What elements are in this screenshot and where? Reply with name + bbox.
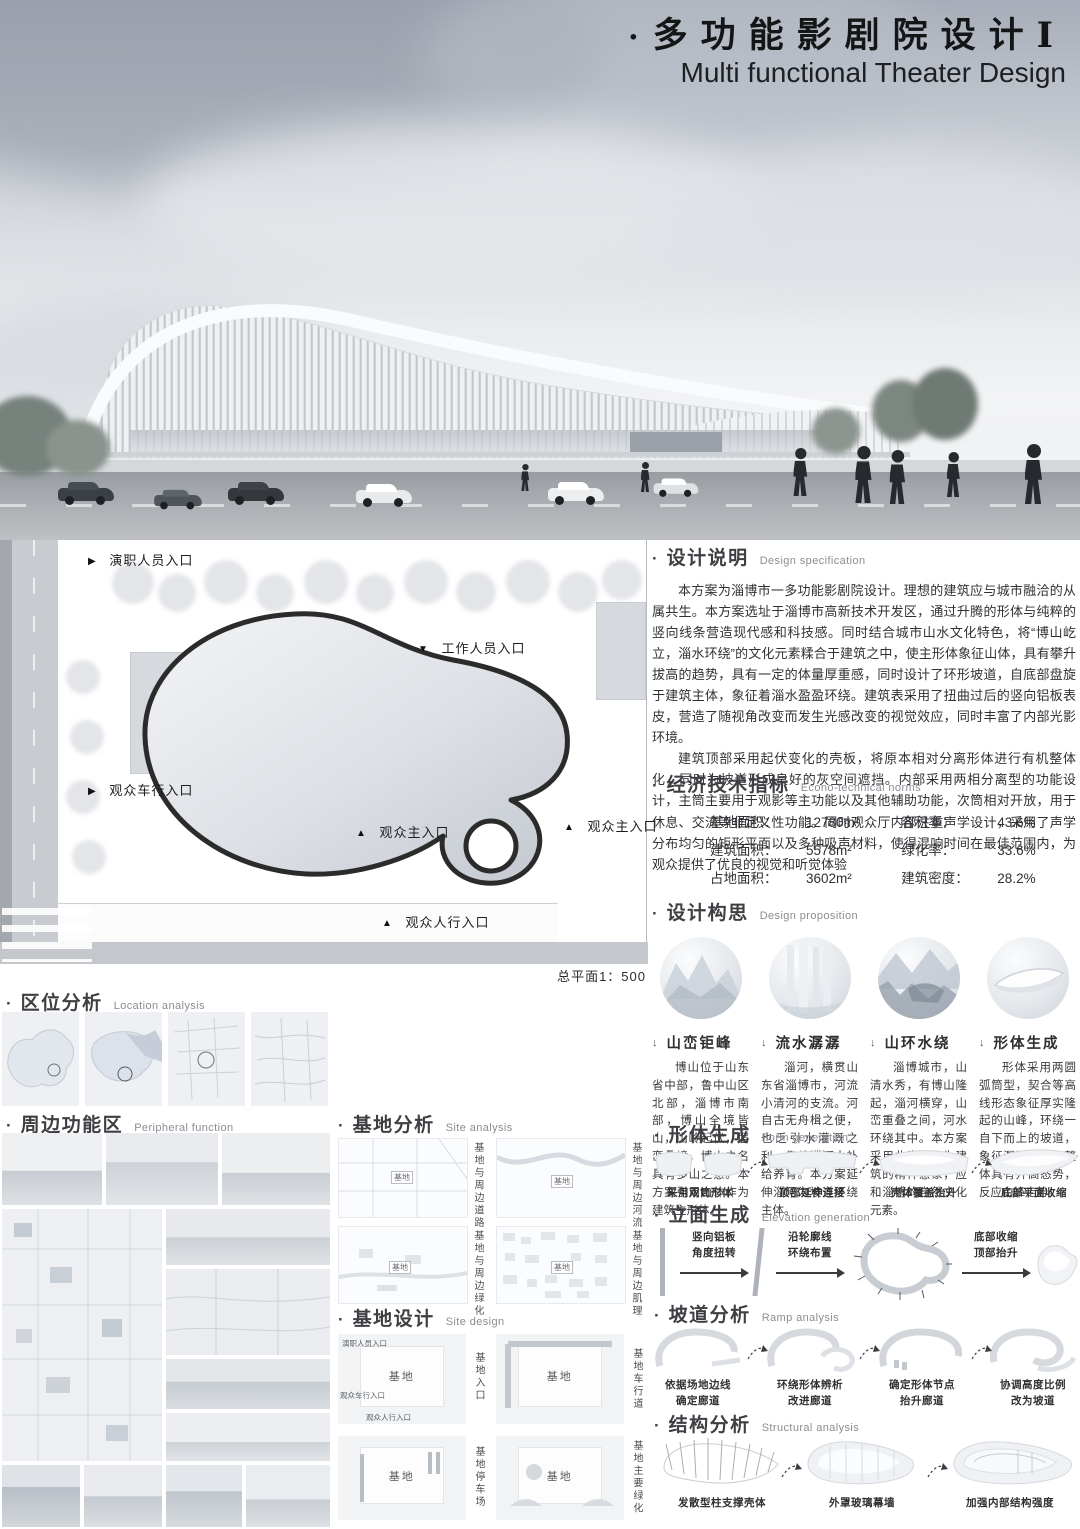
triangle-up-icon: ▲ [356, 828, 367, 839]
ramp-step-2-label: 环绕形体辨析 改进廊道 [764, 1378, 856, 1410]
bullet-icon: · [338, 1310, 344, 1330]
sa-panel-roads: 基地 [338, 1138, 468, 1218]
header-en: Ramp analysis [762, 1312, 839, 1324]
entry-label-text: 观众车行入口 [109, 783, 193, 798]
econ-row: 基地面积：12780m² [710, 813, 859, 832]
entry-label-staff: ▶ 演职人员入口 [88, 550, 193, 569]
dashed-arrow-icon [926, 1460, 950, 1480]
site-tag: 基地 [389, 1261, 411, 1274]
person [792, 448, 808, 496]
poster: ·多功能影剧院设计Ⅰ Multi functional Theater Desi… [0, 0, 1080, 1529]
site-tag: 基地 [551, 1261, 573, 1274]
arrow-down-icon: ↓ [652, 1037, 660, 1049]
bullet-icon: · [654, 1206, 660, 1226]
triangle-up-icon: ▲ [564, 822, 575, 833]
tree [72, 840, 106, 874]
structure-step-1-shape [656, 1434, 790, 1492]
arrow-down-icon: ↓ [979, 1037, 987, 1049]
header-zh: 经济技术指标 [667, 770, 790, 797]
header-zh: 坡道分析 [669, 1300, 751, 1327]
tree [46, 420, 110, 476]
econ-value: 3602m² [806, 869, 852, 888]
elevation-steps: 竖向铝板 角度扭转 沿轮廓线 环绕布置 底部收缩 顶部抬升 [652, 1226, 1080, 1302]
sd-panel-green: 基地 [496, 1436, 624, 1520]
map-district [251, 1012, 328, 1106]
ramp-step-4-shape [988, 1326, 1078, 1374]
structure-header: · 结构分析 Structural analysis [654, 1410, 859, 1437]
form-step-1-shape [652, 1146, 748, 1182]
location-header: · 区位分析 Location analysis [6, 988, 205, 1015]
structure-step-1-label: 发散型柱支撑壳体 [652, 1496, 792, 1512]
econ-col-left: 基地面积：12780m² 建筑面积：5578m² 占地面积：3602m² [710, 813, 859, 888]
elevation-step-2-label: 沿轮廓线 环绕布置 [774, 1230, 846, 1262]
plan-scale-label: 总平面1：500 [506, 966, 646, 985]
section-econ: · 经济技术指标 Econo-technical norms 基地面积：1278… [652, 770, 1080, 888]
cloud [640, 150, 1080, 290]
photo-area-map [2, 1209, 162, 1461]
person [854, 446, 873, 503]
econ-label: 绿化率： [901, 841, 997, 860]
site-design-header: · 基地设计 Site design [338, 1304, 505, 1331]
car [228, 488, 284, 501]
ramp-step-4-label: 协调高度比例 改为坡道 [988, 1378, 1078, 1410]
poster-title-zh: ·多功能影剧院设计Ⅰ [628, 16, 1066, 56]
header-zh: 区位分析 [21, 988, 103, 1015]
site-tag: 基地 [389, 1368, 415, 1384]
dashed-arrow-icon [970, 1156, 994, 1176]
sd-panel-road: 基地 [496, 1334, 624, 1424]
car [154, 495, 202, 506]
sa-caption-roads: 基地与周边道路 [470, 1142, 485, 1230]
proposition-caption: ↓山峦钜峰 [652, 1032, 749, 1053]
tree [912, 368, 978, 440]
photo-building [166, 1465, 242, 1527]
bullet-icon: · [652, 776, 658, 796]
photo-building [84, 1465, 162, 1527]
header-en: Econo-technical norms [801, 782, 921, 794]
elevation-step-3-label: 底部收缩 顶部抬升 [960, 1230, 1032, 1262]
econ-value: 43.6% [997, 813, 1035, 832]
photo-building [106, 1133, 218, 1205]
form-model-image [987, 937, 1069, 1019]
econ-col-right: 容积率：43.6% 绿化率：33.6% 建筑密度：28.2% [901, 813, 1035, 888]
photo-building [166, 1413, 330, 1461]
arrow-right-icon [962, 1272, 1024, 1274]
poster-title-en: Multi functional Theater Design [628, 57, 1066, 89]
elevation-header: · 立面生成 Elevation generation [654, 1200, 870, 1227]
structure-step-2-label: 外罩玻璃幕墙 [794, 1496, 930, 1512]
person [521, 464, 530, 491]
dashed-arrow-icon [970, 1342, 994, 1362]
twisted-panel-bar [752, 1228, 764, 1296]
econ-label: 建筑密度： [901, 869, 997, 888]
hero-rendering: ·多功能影剧院设计Ⅰ Multi functional Theater Desi… [0, 0, 1080, 540]
header-en: Site analysis [446, 1122, 513, 1134]
econ-row: 建筑密度：28.2% [901, 869, 1035, 888]
car [58, 488, 114, 501]
proposition-caption: ↓形体生成 [979, 1032, 1076, 1053]
plan-outline-diagram [850, 1226, 956, 1302]
econ-header: · 经济技术指标 Econo-technical norms [652, 770, 1080, 797]
map-country [2, 1012, 79, 1106]
elevation-step-1-label: 竖向铝板 角度扭转 [678, 1230, 750, 1262]
arrow-right-icon [680, 1272, 742, 1274]
bullet-icon: · [654, 1416, 660, 1436]
header-en: Form generation [762, 1132, 849, 1144]
form-step-4-shape [988, 1146, 1080, 1182]
person [640, 462, 650, 492]
entry-label-pedestrian: ▲ 观众人行入口 [382, 912, 490, 931]
sd-caption-entry: 基地入口 [471, 1352, 486, 1402]
entry-label-text: 观众主入口 [588, 819, 658, 834]
sd-caption-road: 基地车行道 [629, 1348, 644, 1411]
form-generation-header: · 形体生成 Form generation [654, 1120, 848, 1147]
sd-caption-parking: 基地停车场 [471, 1446, 486, 1509]
dashed-arrow-icon [780, 1460, 804, 1480]
bullet-icon: · [652, 549, 658, 569]
site-tag: 基地 [551, 1175, 573, 1188]
entry-label-text: 工作人员入口 [442, 641, 526, 656]
location-maps [2, 1012, 328, 1106]
econ-row: 占地面积：3602m² [710, 869, 859, 888]
proposition-caption: ↓山环水绕 [870, 1032, 967, 1053]
header-zh: 设计说明 [667, 543, 749, 570]
site-analysis-header: · 基地分析 Site analysis [338, 1110, 513, 1137]
poster-title: ·多功能影剧院设计Ⅰ Multi functional Theater Desi… [628, 16, 1066, 89]
person [946, 452, 961, 497]
bullet-icon: · [628, 20, 638, 55]
caption-text: 形体生成 [994, 1032, 1060, 1053]
header-zh: 结构分析 [669, 1410, 751, 1437]
structure-steps: 发散型柱支撑壳体 外罩玻璃幕墙 加强内部结构强度 [652, 1434, 1080, 1524]
bullet-icon: · [652, 904, 658, 924]
car [548, 488, 604, 501]
sa-panel-river: 基地 [496, 1138, 626, 1218]
car [654, 483, 699, 493]
header-en: Structural analysis [762, 1422, 859, 1434]
ramp-step-3-shape [876, 1326, 968, 1374]
triangle-right-icon: ▶ [88, 786, 97, 797]
sa-caption-fabric: 基地与周边肌理 [628, 1230, 643, 1318]
econ-table: 基地面积：12780m² 建筑面积：5578m² 占地面积：3602m² 容积率… [710, 813, 1080, 888]
econ-row: 建筑面积：5578m² [710, 841, 859, 860]
header-zh: 形体生成 [669, 1120, 751, 1147]
sd-caption-green: 基地主要绿化 [629, 1440, 644, 1515]
header-en: Site design [446, 1316, 505, 1328]
dashed-arrow-icon [858, 1342, 882, 1362]
entry-label-worker: ▼ 工作人员入口 [418, 638, 526, 657]
sd-panel-parking: 基地 [338, 1436, 466, 1520]
proposition-caption: ↓流水潺潺 [761, 1032, 858, 1053]
caption-text: 山峦钜峰 [667, 1032, 733, 1053]
ramp-header: · 坡道分析 Ramp analysis [654, 1300, 839, 1327]
econ-value: 12780m² [806, 813, 859, 832]
econ-row: 绿化率：33.6% [901, 841, 1035, 860]
sa-panel-green: 基地 [338, 1226, 468, 1304]
header-en: Design specification [760, 555, 866, 567]
header-en: Location analysis [114, 1000, 205, 1012]
horizontal-road [0, 942, 648, 964]
peripheral-photo-mosaic [0, 1133, 332, 1529]
master-site-plan: ▶ 演职人员入口 ▼ 工作人员入口 ▶ 观众车行入口 ▲ 观众主入口 ▲ 观众主… [0, 540, 648, 985]
waterfall-photo [769, 937, 851, 1019]
photo-building [222, 1133, 330, 1205]
map-city [168, 1012, 245, 1106]
road-edge [0, 540, 12, 964]
ramp-step-2-shape [764, 1326, 856, 1374]
site-analysis-grid: 基地 基地与周边道路 基地 基地与周边河流 基地 基地与周边绿化 基地 基地与周… [338, 1138, 650, 1304]
header-en: Elevation generation [762, 1212, 870, 1224]
design-spec-paragraph-1: 本方案为淄博市一多功能影剧院设计。理想的建筑应与城市融洽的从属共生。本方案选址于… [652, 580, 1076, 748]
entry-label-text: 演职人员入口 [109, 553, 193, 568]
ramp-step-3-label: 确定形体节点 抬升廊道 [876, 1378, 968, 1410]
ramp-steps: 依据场地边线 确定廊道 环绕形体辨析 改进廊道 确定形体节点 抬升廊道 协调高度… [652, 1326, 1080, 1410]
triangle-right-icon: ▶ [88, 556, 97, 567]
zebra-crossing [2, 908, 92, 962]
econ-label: 占地面积： [710, 869, 806, 888]
road-dashes [33, 540, 35, 964]
sd-entry-staff: 演职人员入口 [342, 1338, 387, 1349]
entry-label-vehicle: ▶ 观众车行入口 [88, 780, 193, 799]
structure-step-2-shape [802, 1434, 922, 1492]
proposition-header: · 设计构思 Design proposition [652, 898, 1080, 925]
entry-label-main-left: ▲ 观众主入口 [356, 822, 450, 841]
bullet-icon: · [654, 1126, 660, 1146]
sa-caption-river: 基地与周边河流 [628, 1142, 643, 1230]
triangle-down-icon: ▼ [418, 644, 429, 655]
arrow-down-icon: ↓ [870, 1037, 878, 1049]
arrow-right-icon [776, 1272, 838, 1274]
city-landscape-photo [878, 937, 960, 1019]
mountain-photo [660, 937, 742, 1019]
site-tag: 基地 [391, 1171, 413, 1184]
dashed-arrow-icon [746, 1156, 770, 1176]
arrow-down-icon: ↓ [761, 1037, 769, 1049]
site-design-grid: 基地 演职人员入口 观众车行入口 观众人行入口 基地入口 基地 基地车行道 基地… [338, 1334, 650, 1526]
entry-label-text: 观众主入口 [380, 825, 450, 840]
bullet-icon: · [338, 1116, 344, 1136]
ramp-step-1-shape [652, 1326, 744, 1374]
sd-entry-pedestrian: 观众人行入口 [366, 1412, 411, 1423]
caption-text: 山环水绕 [885, 1032, 951, 1053]
sd-panel-entries: 基地 演职人员入口 观众车行入口 观众人行入口 [338, 1334, 466, 1424]
econ-row: 容积率：43.6% [901, 813, 1035, 832]
tree [66, 660, 100, 694]
form-step-2-shape [764, 1146, 860, 1182]
header-zh: 立面生成 [669, 1200, 751, 1227]
header-zh: 基地设计 [353, 1304, 435, 1331]
structure-step-3-shape [948, 1434, 1080, 1492]
person [1023, 444, 1043, 504]
structure-step-3-label: 加强内部结构强度 [940, 1496, 1080, 1512]
dashed-arrow-icon [746, 1342, 770, 1362]
photo-bridge [2, 1465, 80, 1527]
header-zh: 设计构思 [667, 898, 749, 925]
aluminum-panel-bar [660, 1228, 665, 1296]
econ-label: 容积率： [901, 813, 997, 832]
photo-building [246, 1465, 330, 1527]
tree [70, 720, 104, 754]
ramp-step-1-label: 依据场地边线 确定廊道 [652, 1378, 744, 1410]
building-footprint [115, 588, 655, 918]
econ-label: 基地面积： [710, 813, 806, 832]
econ-value: 5578m² [806, 841, 852, 860]
caption-text: 流水潺潺 [776, 1032, 842, 1053]
design-spec-header: · 设计说明 Design specification [652, 543, 1080, 570]
map-province [85, 1012, 162, 1106]
triangle-up-icon: ▲ [382, 918, 393, 929]
photo-building [166, 1209, 330, 1265]
car [356, 490, 412, 503]
photo-building [166, 1359, 330, 1409]
sa-panel-fabric: 基地 [496, 1226, 626, 1304]
header-zh: 基地分析 [353, 1110, 435, 1137]
form-step-4-label: 底部平面收缩 [988, 1186, 1080, 1202]
theater-building-rendering [70, 280, 950, 480]
form-step-3-label: 壳体覆盖抬升 [876, 1186, 972, 1202]
entry-label-main-right: ▲ 观众主入口 [564, 816, 658, 835]
person [888, 450, 906, 504]
dashed-arrow-icon [858, 1156, 882, 1176]
bullet-icon: · [6, 994, 12, 1014]
econ-label: 建筑面积： [710, 841, 806, 860]
photo-building [2, 1133, 102, 1205]
entry-label-text: 观众人行入口 [406, 915, 490, 930]
econ-value: 33.6% [997, 841, 1035, 860]
header-en: Design proposition [760, 910, 858, 922]
massing-model [1034, 1238, 1080, 1292]
bullet-icon: · [654, 1306, 660, 1326]
form-step-3-shape [876, 1146, 972, 1182]
econ-value: 28.2% [997, 869, 1035, 888]
photo-map-detail [166, 1269, 330, 1355]
sd-entry-vehicle: 观众车行入口 [340, 1390, 385, 1401]
